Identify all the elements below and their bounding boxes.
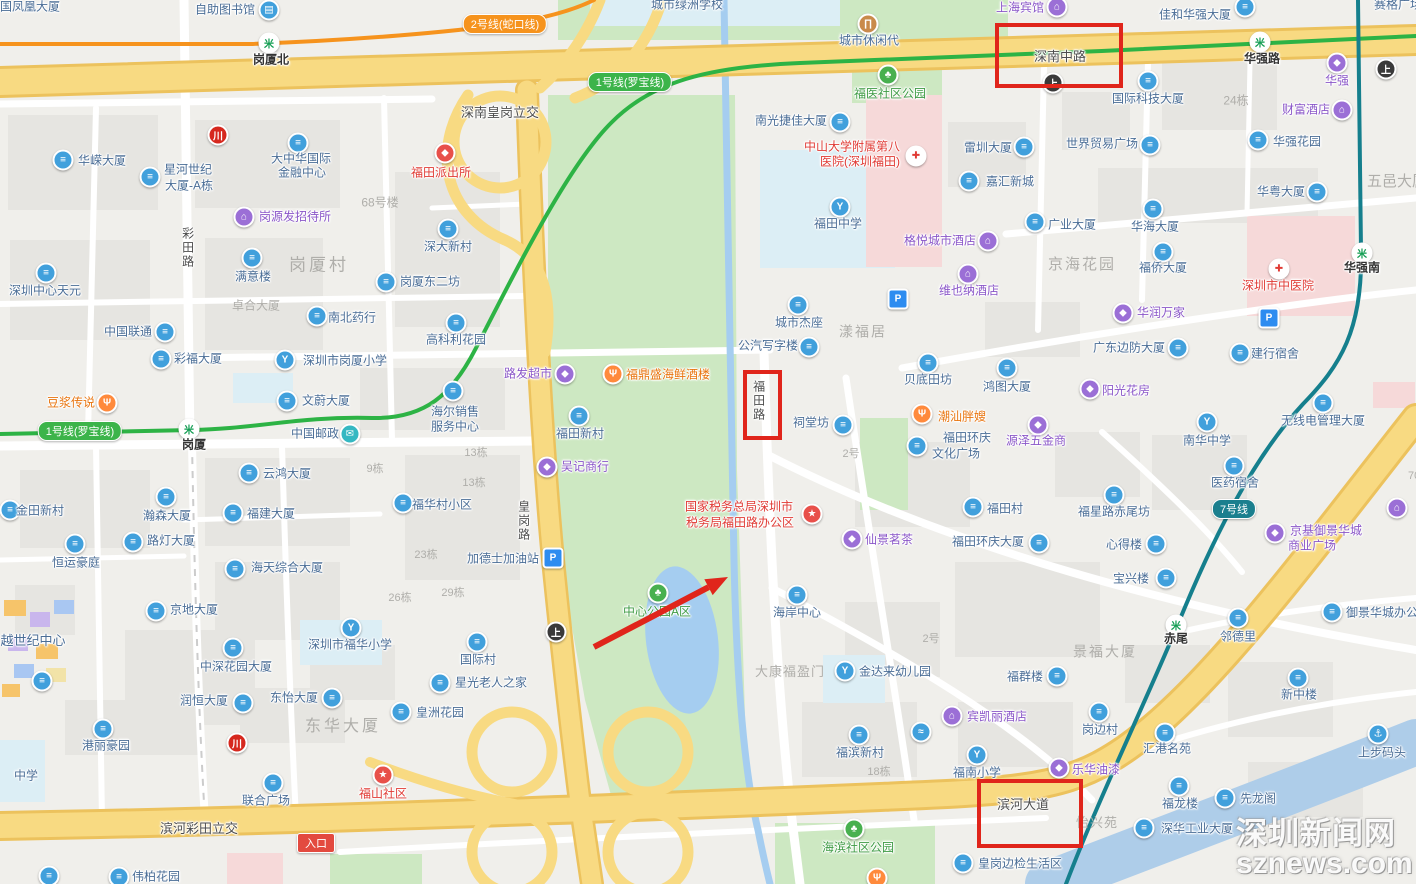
- watermark: 深圳新闻网 sznews.com: [1236, 818, 1413, 879]
- map-canvas[interactable]: 深圳新闻网 sznews.com 米米米米米▤∏⌂⌂⌂⌂⌂⌂⌂◆◆◆◆◆◆◆◆◆…: [0, 0, 1416, 884]
- red-arrow-annotation: [0, 0, 1416, 884]
- watermark-site-url: sznews.com: [1236, 849, 1413, 879]
- watermark-site-name: 深圳新闻网: [1236, 818, 1413, 849]
